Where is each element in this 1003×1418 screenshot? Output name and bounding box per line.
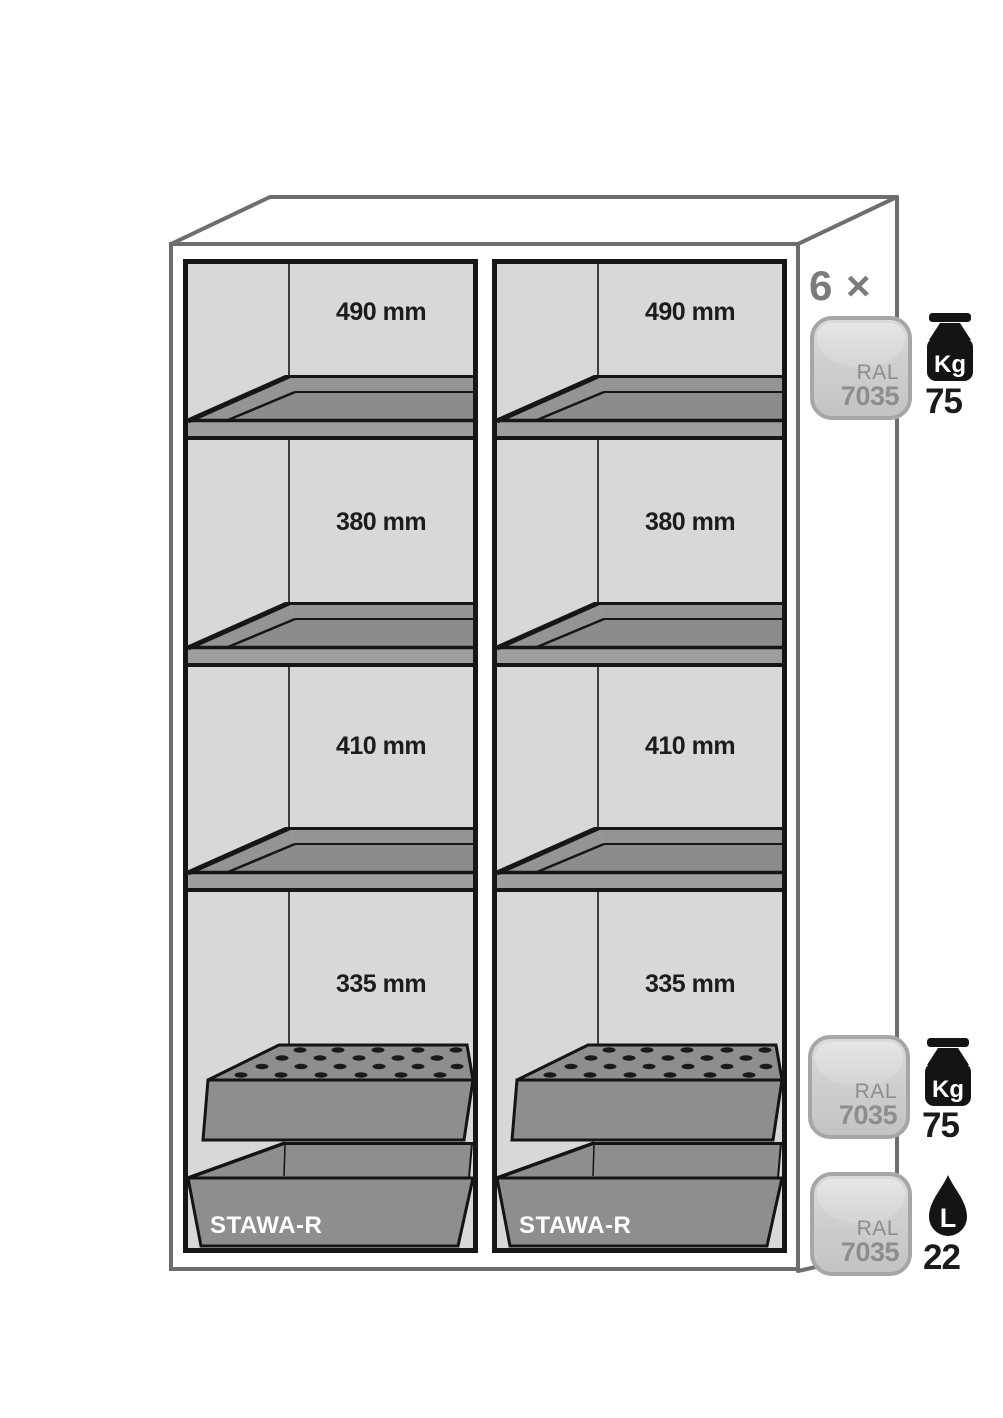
volume-liter-drop-icon: L — [928, 1174, 968, 1238]
shelf-height-label: 380 mm — [289, 509, 473, 535]
compartment-right: 490 mm 380 mm — [492, 259, 787, 1253]
ral-word: RAL — [839, 1081, 897, 1102]
compartment-right-section-1: 490 mm — [497, 264, 782, 440]
shelf-tray — [188, 375, 473, 440]
compartment-right-section-2: 380 mm — [497, 440, 782, 667]
compartment-left-section-3: 410 mm — [188, 667, 473, 892]
sump-interior — [497, 1143, 782, 1178]
ral-code: 7035 — [839, 1102, 897, 1129]
compartment-left: 490 mm 380 mm — [183, 259, 478, 1253]
sump-label: STAWA-R — [519, 1212, 631, 1239]
shelf-tray — [497, 827, 782, 892]
cabinet-top-face — [171, 197, 897, 244]
insert-and-sump: STAWA-R — [497, 892, 782, 1248]
ral-7035-text: RAL 7035 — [841, 1218, 899, 1266]
shelf-height-label: 380 mm — [598, 509, 782, 535]
kg-unit-text: Kg — [932, 1076, 964, 1103]
sump-label: STAWA-R — [210, 1212, 322, 1239]
ral-7035-badge-shelf: RAL 7035 — [810, 316, 912, 420]
perforated-insert-front — [203, 1080, 473, 1140]
sump-interior — [188, 1143, 473, 1178]
perforated-insert-front — [512, 1080, 782, 1140]
shelf-tray — [497, 375, 782, 440]
shelf-height-label: 490 mm — [289, 299, 473, 325]
liter-unit-text: L — [940, 1203, 957, 1233]
weight-kg-icon: Kg — [927, 313, 973, 383]
sump-volume-value: 22 — [923, 1238, 960, 1278]
shelf-height-label: 490 mm — [598, 299, 782, 325]
compartment-left-section-2: 380 mm — [188, 440, 473, 667]
kg-unit-text: Kg — [934, 351, 966, 378]
compartment-right-section-3: 410 mm — [497, 667, 782, 892]
ral-7035-badge-sump: RAL 7035 — [810, 1172, 912, 1276]
shelf-count-label: 6 × — [809, 262, 872, 310]
compartment-left-section-1: 490 mm — [188, 264, 473, 440]
shelf-tray — [497, 602, 782, 667]
compartment-right-section-4: 335 mm STAW — [497, 892, 782, 1248]
cabinet-diagram: 490 mm 380 mm — [0, 0, 1003, 1418]
shelf-height-label: 410 mm — [289, 733, 473, 759]
shelf-load-value: 75 — [925, 382, 962, 422]
shelf-height-label: 410 mm — [598, 733, 782, 759]
shelf-tray — [188, 602, 473, 667]
weight-kg-icon: Kg — [925, 1038, 971, 1108]
insert-and-sump: STAWA-R — [188, 892, 473, 1248]
ral-7035-text: RAL 7035 — [841, 362, 899, 410]
ral-word: RAL — [841, 362, 899, 383]
ral-code: 7035 — [841, 1239, 899, 1266]
ral-7035-text: RAL 7035 — [839, 1081, 897, 1129]
insert-load-value: 75 — [922, 1106, 959, 1146]
ral-code: 7035 — [841, 383, 899, 410]
compartment-left-section-4: 335 mm STAW — [188, 892, 473, 1248]
shelf-tray — [188, 827, 473, 892]
ral-word: RAL — [841, 1218, 899, 1239]
ral-7035-badge-insert: RAL 7035 — [808, 1035, 910, 1139]
